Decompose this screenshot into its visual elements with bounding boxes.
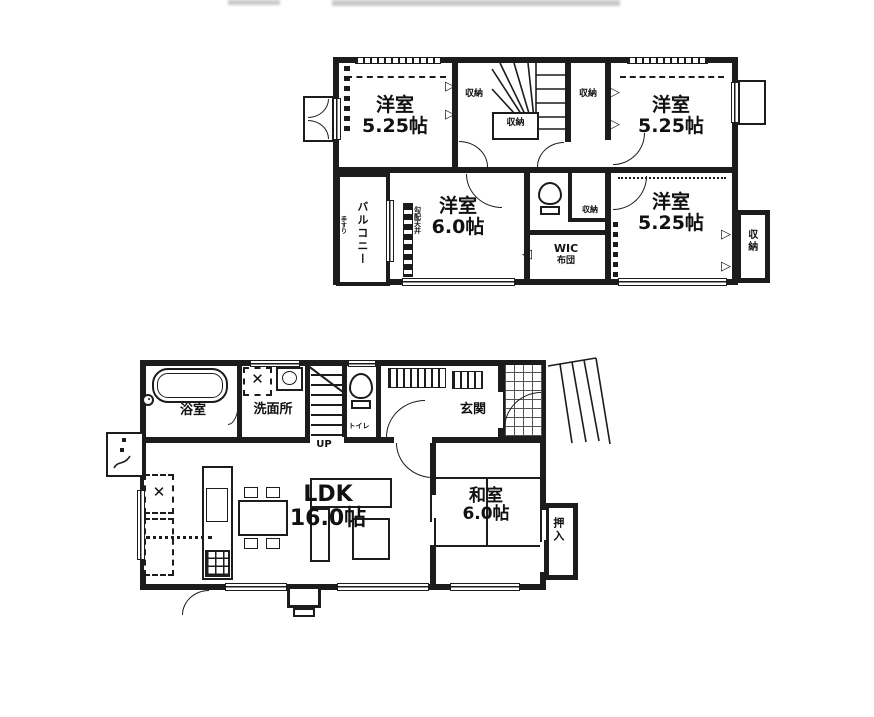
room-label-bedroom-center: 洋室 6.0帖: [402, 196, 514, 237]
chair-icon: [266, 538, 280, 549]
approach-steps-icon: [544, 356, 612, 448]
room-size: 6.0帖: [402, 217, 514, 238]
wall: [530, 230, 605, 235]
room-size: 6.0帖: [436, 505, 536, 523]
washing-machine-cross-icon: ✕: [243, 371, 272, 387]
stairs-1f-icon: [311, 364, 342, 437]
floorplan-canvas: 収納 バルコニー 手すり 勾配天井 ▷ ▷ ▷ ▷ ▷ ▷ ◁ 洋室 5.25帖…: [0, 0, 874, 717]
window: [450, 583, 520, 591]
toilet-label: トイレ: [342, 423, 376, 431]
closet-label: 収納: [456, 90, 492, 100]
room-name: 洋室: [340, 95, 450, 116]
window: [618, 278, 727, 286]
bay-window-icon: [738, 80, 766, 125]
closet-label: 収納: [745, 229, 756, 253]
chair-icon: [244, 487, 258, 498]
wall: [376, 366, 381, 437]
wall: [339, 167, 733, 173]
balcony-door: [386, 200, 394, 262]
wall: [572, 218, 605, 222]
bathtub-icon: [152, 368, 228, 403]
wall: [524, 173, 530, 283]
room-name: 洋室: [402, 196, 514, 217]
balcony-label: バルコニー: [356, 201, 368, 266]
window: [731, 82, 739, 123]
toilet-icon: [351, 400, 371, 409]
bath-valve-icon: [142, 394, 154, 406]
scan-artifact: [332, 0, 620, 6]
closet-label: 収納: [574, 206, 606, 215]
window: [225, 583, 287, 591]
ceiling-line: [620, 76, 724, 78]
sliding-door-line: [544, 540, 546, 572]
sink-icon: [276, 367, 303, 391]
bifold-door-icon: ◁: [522, 248, 532, 261]
window: [402, 278, 515, 286]
balcony-note: 手すり: [339, 216, 345, 234]
toilet-icon: [540, 206, 560, 215]
refrigerator-cross-icon: ✕: [144, 484, 174, 500]
window-shutter: [355, 57, 441, 64]
room-size: 16.0帖: [268, 507, 388, 531]
bath-label: 浴室: [160, 404, 226, 418]
door-opening: [605, 140, 611, 167]
toilet-icon: [349, 373, 373, 399]
tatami-line: [436, 545, 540, 547]
wic-label: WIC: [535, 243, 597, 255]
bifold-door-icon: ▷: [721, 260, 731, 273]
entrance-label: 玄関: [448, 403, 498, 417]
window: [337, 583, 429, 591]
room-size: 5.25帖: [615, 213, 727, 234]
window-shutter: [627, 57, 708, 64]
wic-sub-label: 布団: [535, 257, 597, 267]
room-label-bedroom-se: 洋室 5.25帖: [615, 192, 727, 233]
room-label-bedroom-ne: 洋室 5.25帖: [615, 95, 727, 136]
window: [137, 490, 145, 560]
scan-artifact: [228, 0, 280, 5]
room-name: 洋室: [615, 95, 727, 116]
kitchen-boundary-dots: [146, 536, 212, 539]
room-name: LDK: [268, 483, 388, 507]
room-name: 洋室: [615, 192, 727, 213]
ceiling-line: [346, 76, 446, 78]
back-door-step: [293, 608, 315, 617]
window: [250, 360, 300, 367]
room-label-washitsu: 和室 6.0帖: [436, 487, 536, 524]
shoe-cabinet-icon: [452, 371, 483, 389]
room-name: 和室: [436, 487, 536, 505]
shoe-cabinet-icon: [388, 368, 446, 388]
kitchen-sink-icon: [206, 488, 228, 522]
water-heater-dot: [122, 438, 126, 442]
stairs-up-label: UP: [306, 440, 342, 451]
sliding-door-line: [430, 495, 432, 522]
exterior-door-arc: [182, 590, 209, 615]
wall: [568, 173, 572, 222]
window: [348, 360, 376, 367]
stove-icon: [205, 550, 230, 577]
chair-icon: [244, 538, 258, 549]
washroom-label: 洗面所: [238, 403, 308, 417]
room-size: 5.25帖: [340, 116, 450, 137]
water-heater-pipe-icon: [110, 452, 136, 472]
room-label-ldk: LDK 16.0帖: [268, 483, 388, 531]
tatami-line: [436, 477, 540, 479]
cupboard-icon: [144, 518, 174, 576]
room-size: 5.25帖: [615, 116, 727, 137]
closet-label: 収納: [570, 90, 606, 100]
sliding-door-line: [540, 510, 542, 542]
back-door-icon: [287, 586, 321, 608]
room-label-bedroom-nw: 洋室 5.25帖: [340, 95, 450, 136]
oshiire-label: 押入: [552, 517, 564, 543]
bifold-door-icon: ▷: [445, 80, 455, 93]
closet-label: 収納: [494, 119, 537, 129]
toilet-icon: [538, 182, 562, 205]
